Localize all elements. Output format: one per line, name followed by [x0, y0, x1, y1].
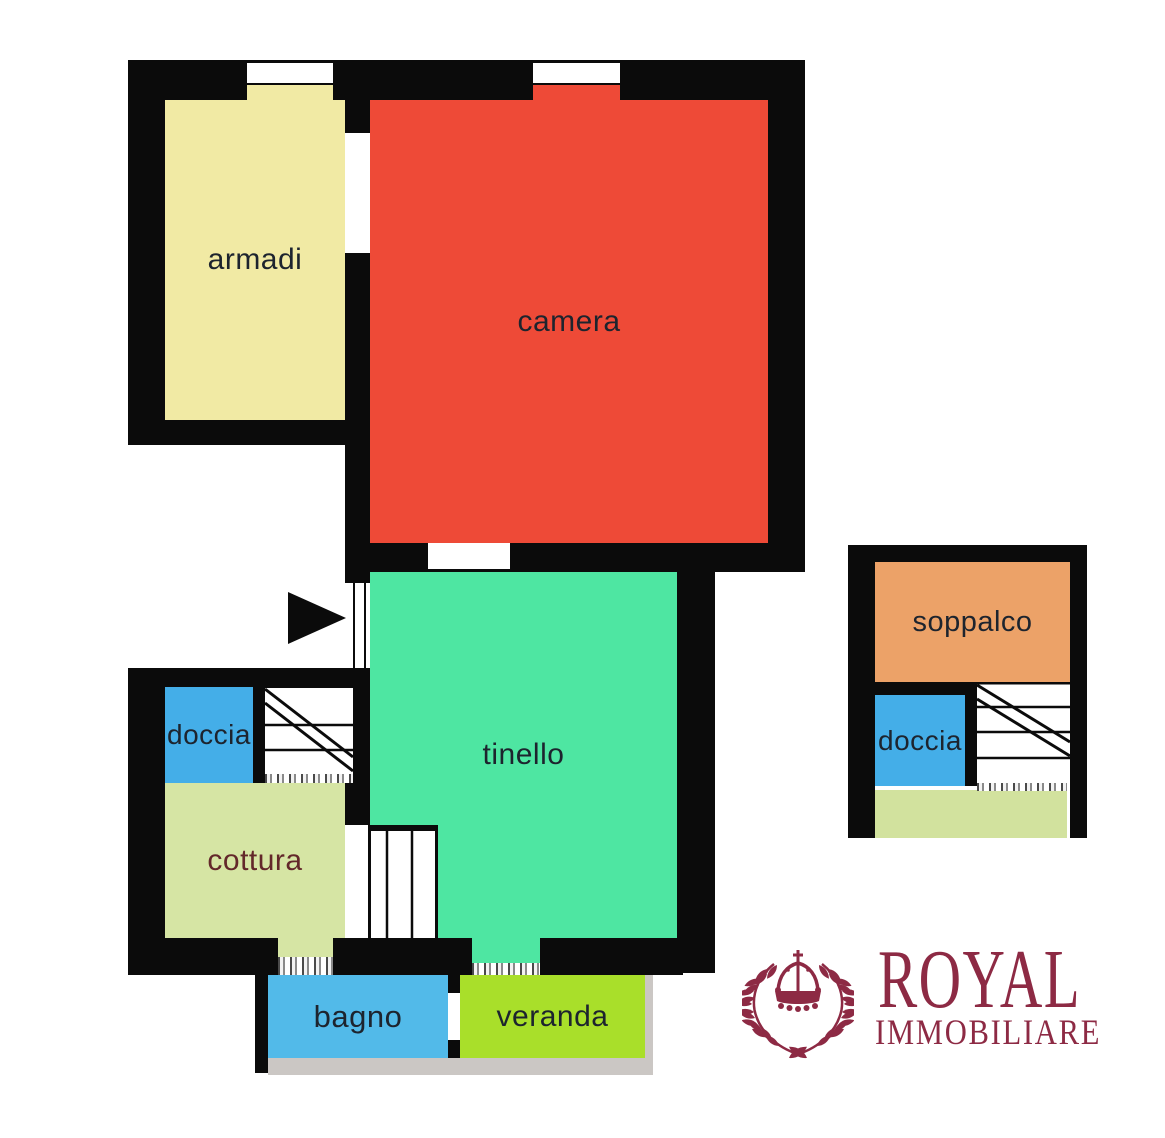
door-bay-tinello-veranda [472, 938, 540, 963]
wall-soppalco-bottom [875, 682, 967, 695]
wall-bottom-a [128, 938, 278, 975]
room-label-cottura: cottura [207, 844, 302, 878]
threshold-stairs-right [977, 783, 1067, 791]
room-bagno: bagno [268, 975, 448, 1058]
door-leaf-tinello-cottura [368, 825, 438, 938]
logo-title: ROYAL [878, 938, 1081, 1022]
wall-bagno-veranda-sep-top [448, 975, 460, 993]
room-cottura: cottura [165, 783, 345, 938]
room-label-armadi: armadi [208, 243, 303, 277]
logo-wreath-crown-icon [742, 942, 854, 1060]
room-label-bagno: bagno [314, 999, 403, 1035]
threshold-stairs-left [265, 774, 353, 783]
wall-bagno-left [255, 975, 268, 1073]
terrace-right [875, 790, 1067, 838]
window-bay-camera [533, 85, 620, 100]
stairs-left [265, 685, 353, 783]
threshold-cottura-bagno [278, 957, 333, 975]
wall-annex-doccia-stairs-separator [965, 682, 977, 786]
room-camera: camera [370, 100, 768, 543]
wall-annex-top [848, 545, 1087, 562]
wall-armadi-bottom [128, 420, 355, 445]
room-veranda: veranda [460, 975, 645, 1058]
wall-tinello-right [677, 572, 715, 973]
entrance-door-jamb-right [364, 583, 366, 668]
wall-annex-left [848, 545, 875, 838]
entrance-door-jamb-left [353, 583, 355, 668]
wall-camera-right [768, 60, 805, 572]
entrance-arrow-icon [288, 592, 346, 644]
window-sill-camera [533, 83, 620, 85]
room-doccia-right: doccia [875, 695, 965, 786]
door-opening-armadi-camera [345, 133, 370, 253]
kerb-bottom [268, 1058, 653, 1075]
logo-subtitle: IMMOBILIARE [875, 1014, 1101, 1050]
wall-annex-right [1070, 545, 1087, 838]
room-label-doccia-right: doccia [878, 725, 962, 757]
kerb-right [645, 975, 653, 1075]
wall-mid-vertical-a [345, 100, 370, 133]
wall-bottom-b [333, 938, 472, 975]
room-label-veranda: veranda [497, 1000, 609, 1034]
room-doccia-left: doccia [165, 687, 253, 783]
wall-mid-vertical-b [345, 253, 370, 583]
wall-camera-bottom [345, 543, 805, 572]
room-label-camera: camera [517, 305, 620, 339]
window-sill-armadi [247, 83, 333, 85]
wall-bagno-veranda-sep-bottom [448, 1040, 460, 1058]
room-label-doccia-left: doccia [167, 719, 251, 751]
wall-left-lower [128, 668, 165, 975]
room-label-soppalco: soppalco [912, 606, 1032, 639]
threshold-tinello-veranda [472, 963, 540, 975]
room-soppalco: soppalco [875, 562, 1070, 682]
floorplan-canvas: armadi camera tinello doccia cottura bag… [0, 0, 1165, 1138]
wall-top [128, 60, 805, 100]
door-bay-cottura-bagno [278, 938, 333, 957]
door-opening-entrance [345, 583, 370, 668]
stairs-right [977, 682, 1070, 783]
door-opening-camera-tinello [428, 543, 510, 569]
wall-doccia-stairs-separator [253, 687, 265, 783]
room-label-tinello: tinello [483, 738, 565, 772]
window-bay-armadi [247, 85, 333, 100]
wall-left-upper [128, 60, 165, 445]
wall-bottom-c [540, 938, 683, 975]
room-armadi: armadi [165, 100, 345, 420]
